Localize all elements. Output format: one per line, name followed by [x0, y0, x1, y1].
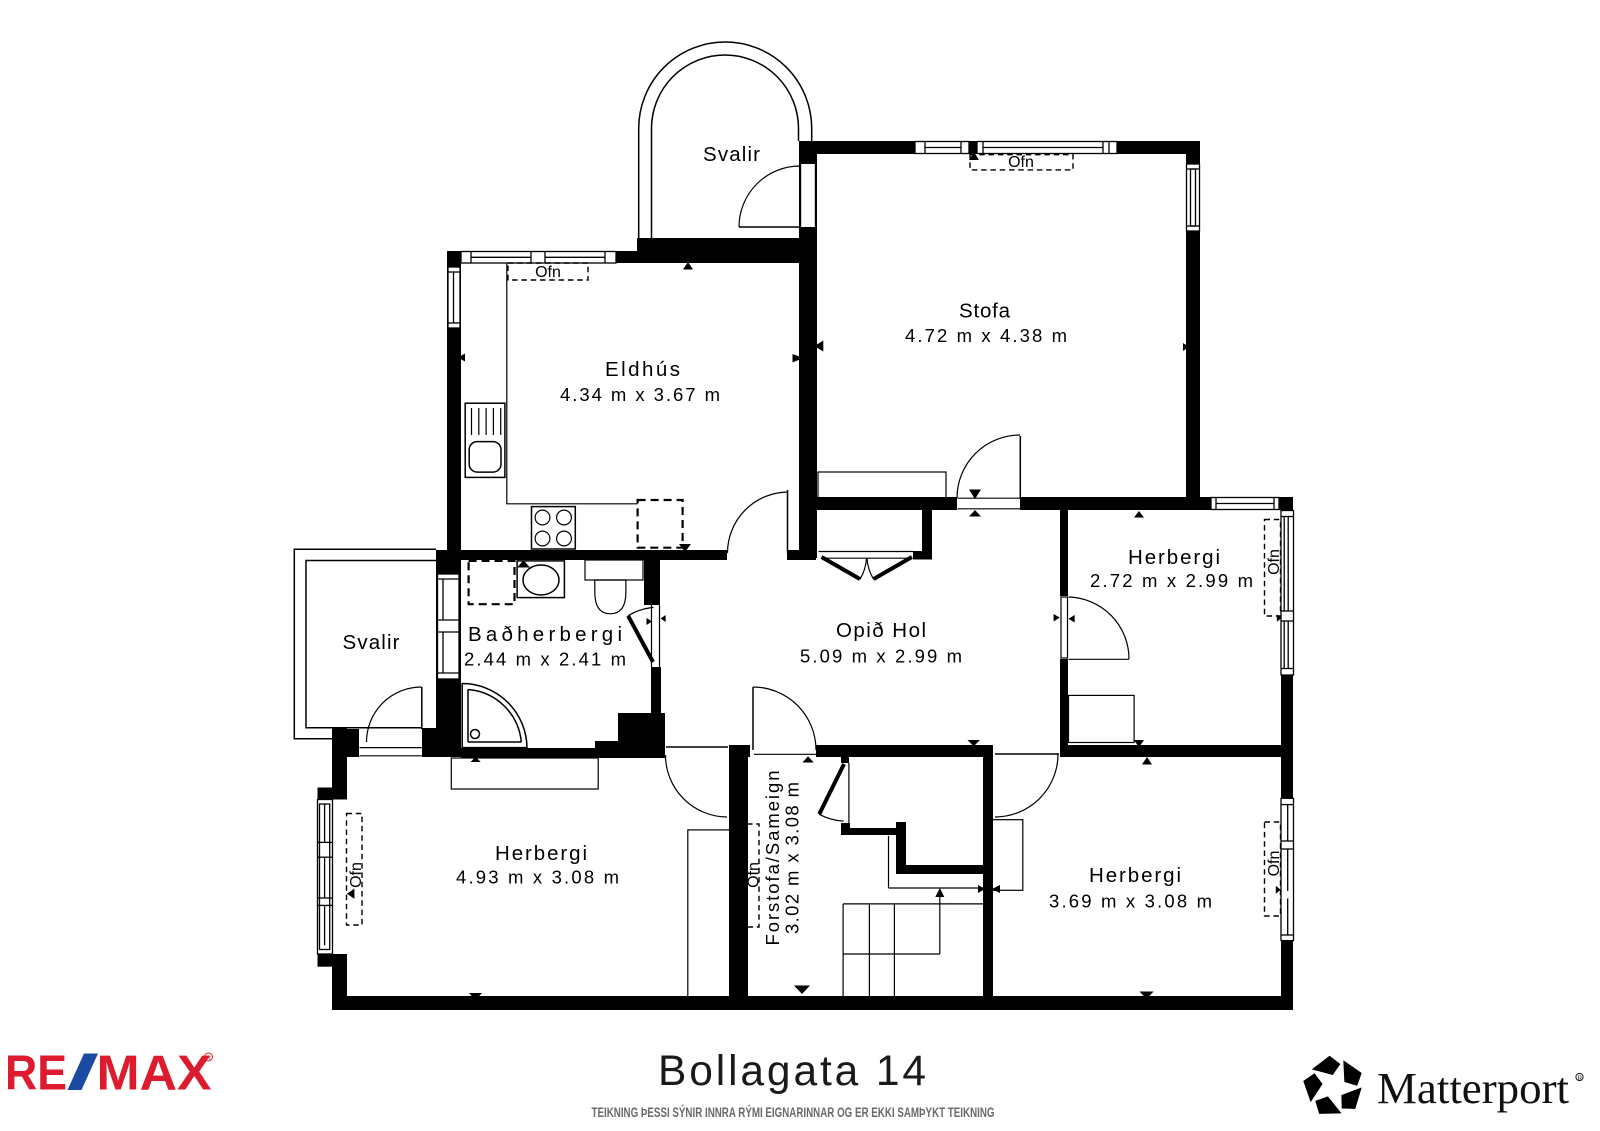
svg-text:Ofn: Ofn [1266, 851, 1283, 877]
svg-text:TEIKNING ÞESSI SÝNIR INNRA RÝM: TEIKNING ÞESSI SÝNIR INNRA RÝMI EIGNARIN… [592, 1105, 995, 1120]
svg-text:Svalir: Svalir [343, 631, 400, 654]
svg-text:R: R [206, 1055, 211, 1062]
svg-text:Herbergi: Herbergi [495, 842, 587, 865]
svg-text:Svalir: Svalir [703, 143, 760, 166]
svg-text:Opið Hol: Opið Hol [836, 619, 926, 642]
svg-text:RE: RE [5, 1046, 67, 1101]
svg-text:3.02 m x 3.08 m: 3.02 m x 3.08 m [782, 782, 803, 934]
svg-text:MAX: MAX [97, 1046, 212, 1101]
svg-text:R: R [1578, 1075, 1583, 1083]
svg-text:Herbergi: Herbergi [1089, 864, 1181, 887]
svg-text:Ofn: Ofn [1266, 549, 1283, 575]
svg-text:Ofn: Ofn [746, 862, 763, 888]
svg-text:Stofa: Stofa [959, 300, 1011, 323]
svg-text:Herbergi: Herbergi [1128, 546, 1220, 569]
svg-text:Matterport: Matterport [1377, 1064, 1569, 1113]
svg-text:Ofn: Ofn [1008, 154, 1034, 171]
svg-text:Forstofa/Sameign: Forstofa/Sameign [762, 771, 783, 946]
svg-text:Ofn: Ofn [535, 264, 561, 281]
svg-text:Ofn: Ofn [348, 862, 365, 888]
